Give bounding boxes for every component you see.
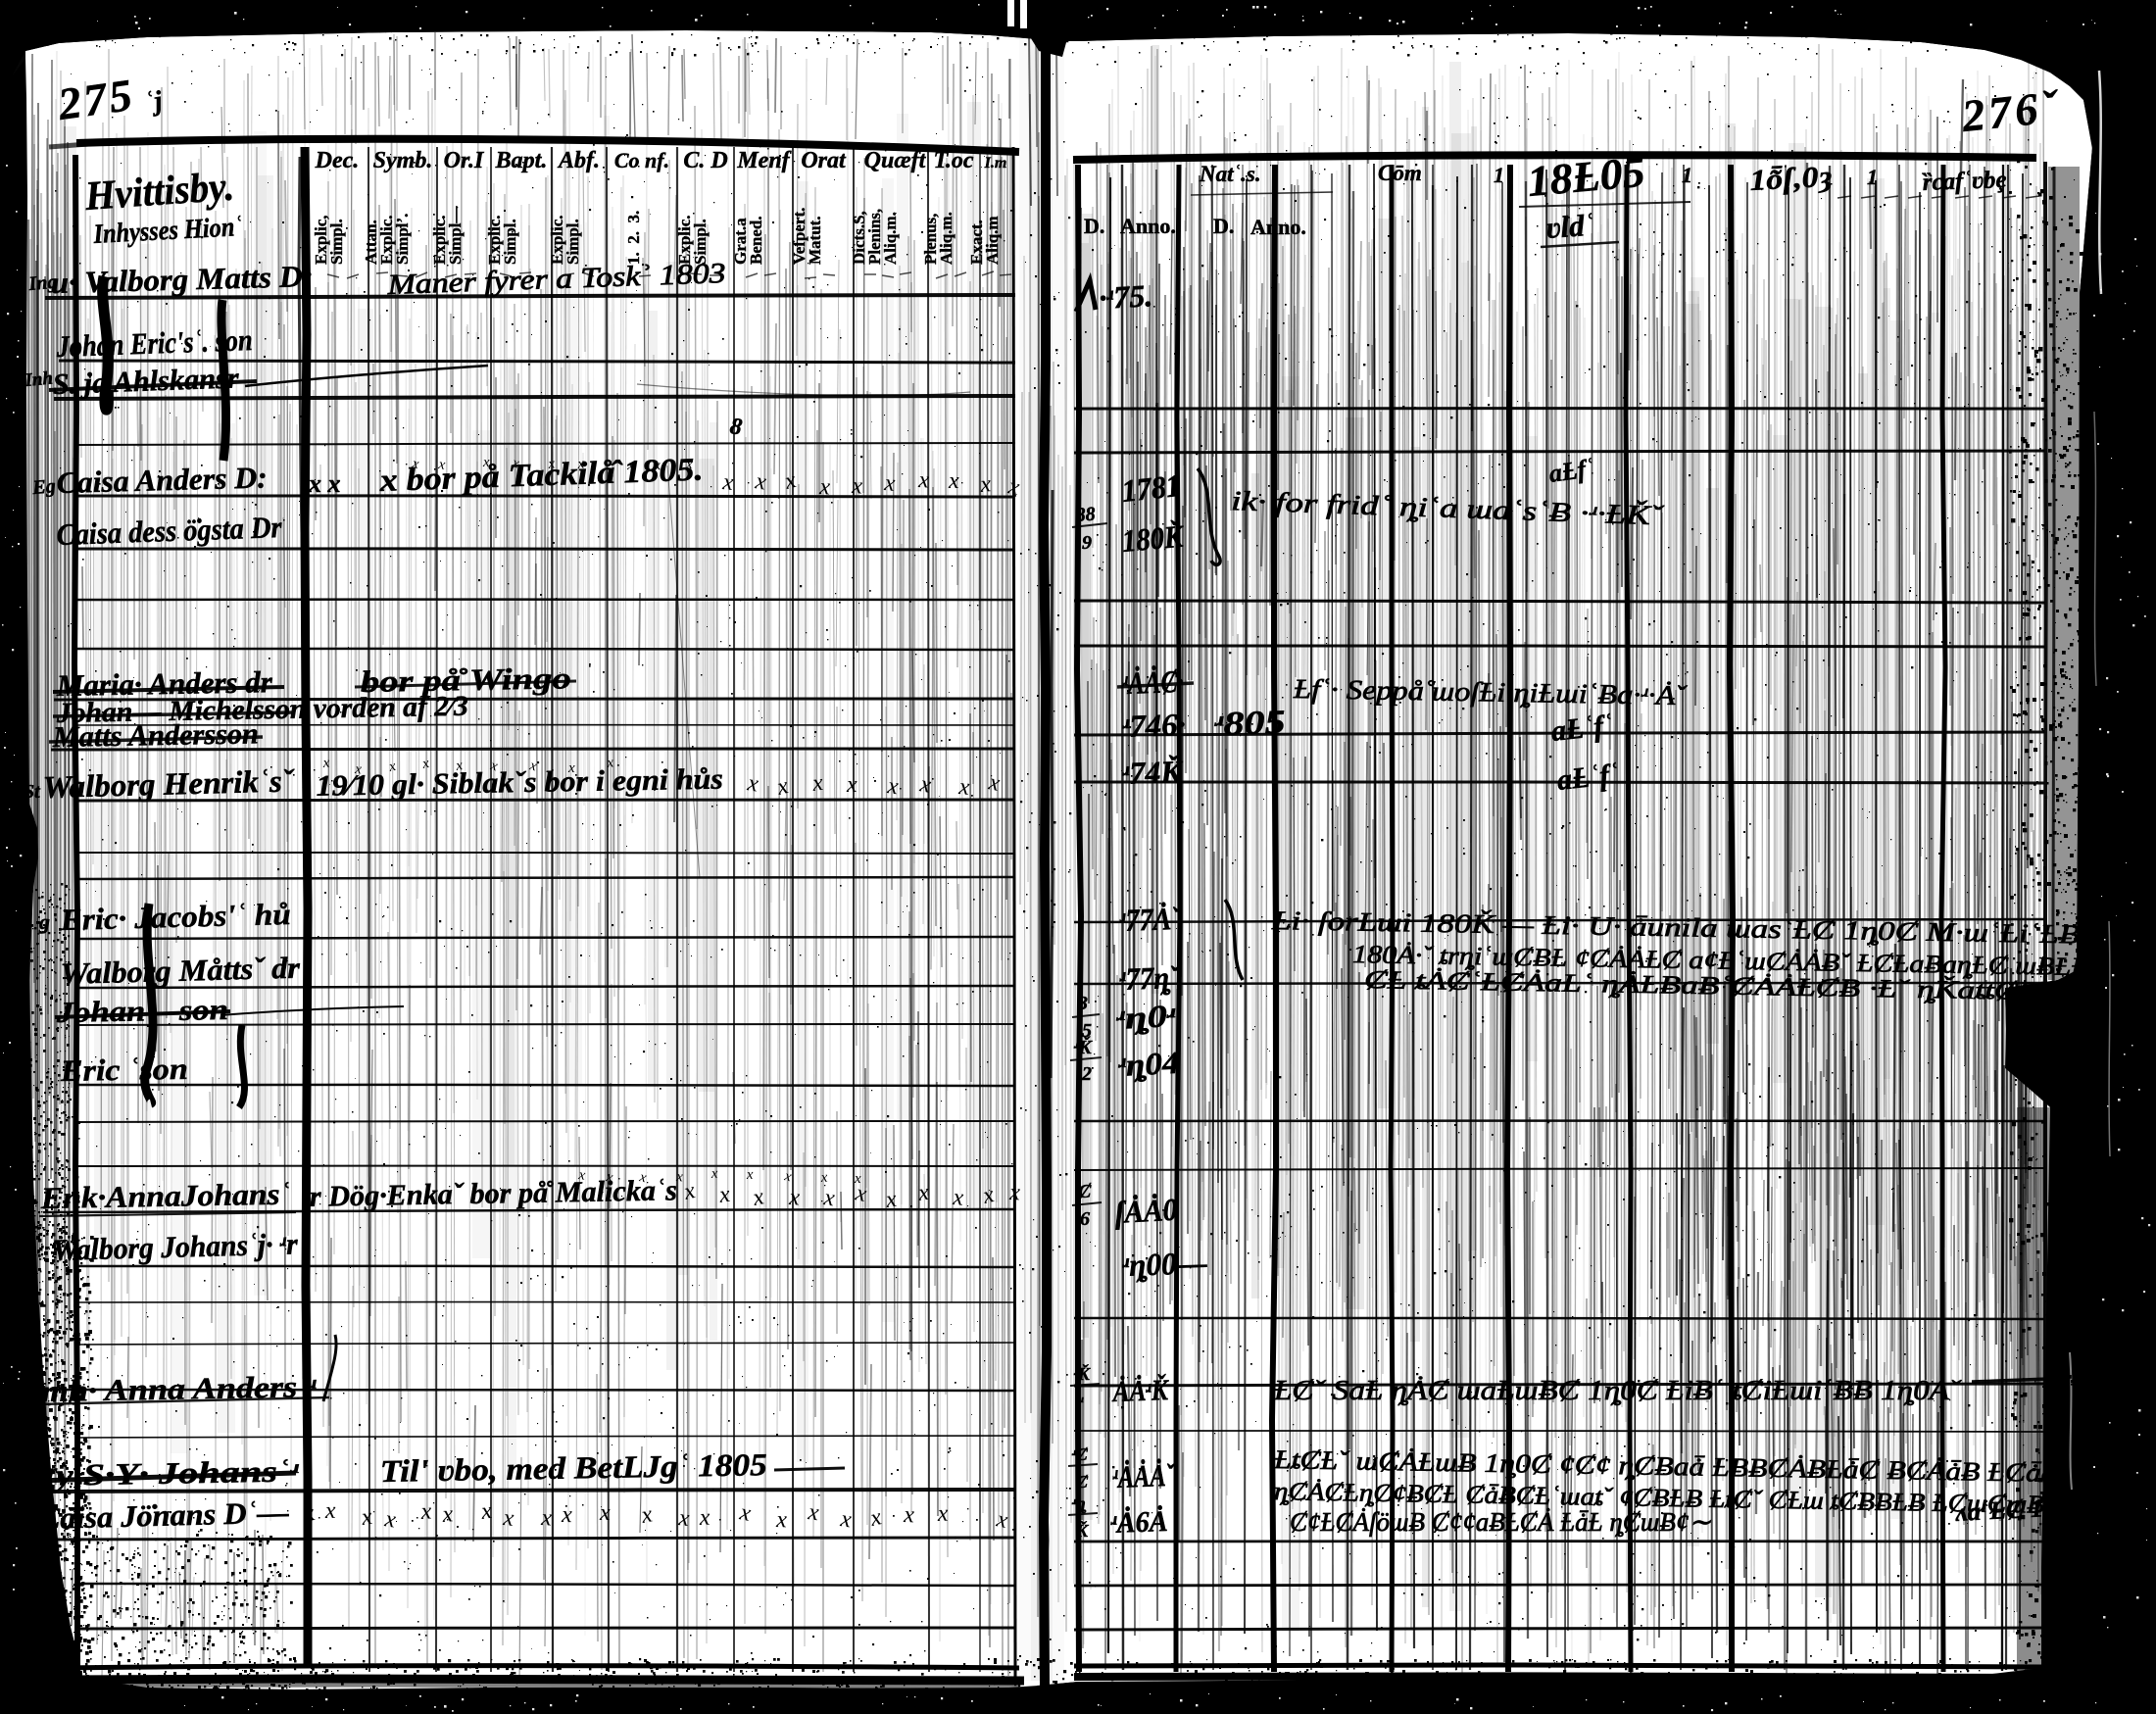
svg-text:ʋldʿ: ʋldʿ [1544,208,1595,245]
svg-text:1: 1 [1682,163,1692,187]
svg-text:Simpl’.: Simpl’. [393,214,412,265]
svg-text:2: 2 [1081,1063,1092,1085]
svg-text:x: x [775,1507,788,1533]
svg-text:Quæft: Quæft [864,148,927,173]
svg-text:Caisa Anders D:: Caisa Anders D: [56,460,268,500]
svg-text:Ȼ: Ȼ [1078,1181,1092,1202]
svg-text:Symb.: Symb. [373,148,433,173]
svg-text:Walborg Måttsˇ drʿ⁢: Walborg Måttsˇ drʿ⁢ [60,950,311,991]
svg-text:Bened.: Bened. [747,216,765,265]
svg-text:276ˇ: 276ˇ [1959,81,2063,141]
svg-text:Or.I: Or.I [444,148,485,173]
svg-text:ʿr⁢ Dög·Enkaˇ bor på̊ Malickaʿ: ʿr⁢ Dög·Enkaˇ bor på̊ Malickaʿs [300,1174,678,1213]
svg-text:x: x [698,1505,710,1531]
svg-text:x: x [746,1167,755,1183]
svg-text:x: x [540,1505,553,1532]
svg-text:Dec.: Dec. [315,148,360,173]
svg-text:x: x [846,772,857,798]
svg-text:ʴ77Ȧˇ: ʴ77Ȧˇ [1118,901,1183,938]
svg-text:Caisa⁢ Jö̇nans⁢ Dʿ—: Caisa⁢ Jö̇nans⁢ Dʿ— [38,1494,289,1536]
svg-text:ʴǨ: ʴǨ [1073,1363,1092,1384]
svg-text:ʴȦȦȻ·: ʴȦȦȻ· [1121,663,1184,701]
svg-text:Eric· Jacobsʹʿ hů: Eric· Jacobsʹʿ hů [59,897,291,937]
svg-text:ȽȻˇ SaȽ ȵȦȻ ɯaȽɯɃȻ ⁢1ȵ0Ȼ⁢ ȽiɃʿ: ȽȻˇ SaȽ ȵȦȻ ɯaȽɯɃȻ ⁢1ȵ0Ȼ⁢ ȽiɃʿ ȶȻiȽɯiʿɃɃ… [1273,1375,1962,1406]
svg-text:Aliq.m.: Aliq.m. [881,212,900,265]
svg-text:9: 9 [1082,532,1092,554]
svg-text:D.: D. [1084,214,1104,238]
svg-text:x: x [818,474,831,501]
svg-text:Simpl.: Simpl. [327,219,346,265]
svg-text:x: x [441,1501,455,1528]
svg-text:ʴ746·: ʴ746· [1121,707,1186,744]
svg-text:Eric⁢ ʿson: Eric⁢ ʿson [59,1052,188,1088]
svg-text:ʴȻ: ʴȻ [1071,1445,1089,1464]
svg-text:Simpl—: Simpl— [446,205,465,265]
svg-text:Walborg Henrikʿsˇ: Walborg Henrikʿsˇ [42,762,295,805]
svg-text:ʴȵ00—: ʴȵ00— [1121,1245,1207,1283]
svg-text:18Ƚ05: 18Ƚ05 [1526,148,1647,206]
svg-text:Matts Andersson: Matts Andersson [52,717,260,754]
svg-text:u· Valborg Matts D:: u· Valborg Matts D: [50,259,314,300]
svg-text:ʴǨ: ʴǨ [1073,1035,1093,1058]
svg-text:Tilʹ ʋbo,⁢ med BetǇgʿ 1805: Tilʹ ʋbo,⁢ med BetǇgʿ 1805 [379,1446,767,1489]
svg-text:x: x [354,761,363,778]
svg-text:x: x [1008,1180,1021,1205]
svg-text:ʴȵ04: ʴȵ04 [1116,1045,1180,1083]
svg-text:x: x [903,1502,915,1528]
svg-text:1ȭſ,0ȝ: 1ȭſ,0ȝ [1749,161,1835,197]
svg-text:ȻȼȽȻȦſöɯɃ⁢ Ȼȼ⁢ȼaɃȽȻȦ⁢ ȽǡȽ⁢ ȵȻɯ: ȻȼȽȻȦſöɯɃ⁢ Ȼȼ⁢ȼaɃȽȻȦ⁢ ȽǡȽ⁢ ȵȻɯɃȼ⁢∼ [1290,1507,1711,1537]
svg-text:Co nf.: Co nf. [614,148,669,172]
svg-text:ʴȵ0ʴ: ʴȵ0ʴ [1114,998,1176,1036]
svg-text:Anno.: Anno. [1120,214,1176,238]
svg-text:Ǩ: Ǩ [1075,1520,1090,1541]
svg-text:1: 1 [1867,165,1878,189]
svg-text:x: x [324,1498,336,1524]
svg-text:3: 3 [1077,993,1088,1014]
svg-text:Bapt.: Bapt. [495,148,548,173]
svg-text:x: x [710,1166,718,1182]
svg-text:D.: D. [1213,214,1234,238]
svg-text:ʴȦ6Ȧ: ʴȦ6Ȧ [1109,1505,1168,1540]
svg-text:Orat: Orat [801,148,847,173]
svg-text:x: x [419,1498,432,1525]
svg-text:Matut.: Matut. [806,216,824,265]
svg-text:aȽʿfʿ: aȽʿfʿ [1549,710,1614,748]
svg-text:aȽʿfʿ: aȽʿfʿ [1555,759,1620,797]
svg-text:Simpl.: Simpl. [501,219,519,265]
svg-text:Abf.: Abf. [557,148,600,173]
svg-text:x: x [599,1500,611,1526]
svg-text:C. D: C. D [683,148,727,173]
svg-text:Menf: Menf [736,148,791,173]
svg-text:I.m: I.m [984,155,1007,171]
svg-text:6: 6 [1080,1208,1090,1230]
svg-text:1. 2. 3.: 1. 2. 3. [624,211,643,265]
svg-text:Ȼ: Ȼ [1076,1472,1089,1492]
svg-text:ȑcafʿʋbȩ: ȑcafʿʋbȩ [1921,167,2007,196]
svg-text:ʴʴ: ʴʴ [1075,1392,1084,1411]
svg-text:Natʿ.s.: Natʿ.s. [1199,162,1261,186]
svg-text:Johan Ericʹsʿ. son: Johan Ericʹsʿ. son [55,322,253,364]
svg-text:ʴȦȦȦˇ: ʴȦȦȦˇ [1111,1457,1176,1494]
svg-text:Simpl.: Simpl. [563,219,582,265]
svg-text:x: x [917,467,930,494]
svg-text:x x: x x [308,469,341,498]
svg-text:T.oc: T.oc [933,148,973,173]
svg-text:x: x [788,1185,801,1211]
svg-text:1: 1 [1494,163,1504,187]
svg-text:ſȦȦ0: ſȦȦ0 [1113,1192,1178,1230]
svg-text:275: 275 [54,70,137,129]
svg-text:ʴȵ: ʴȵ [1071,1494,1087,1513]
svg-text:x: x [482,455,490,470]
